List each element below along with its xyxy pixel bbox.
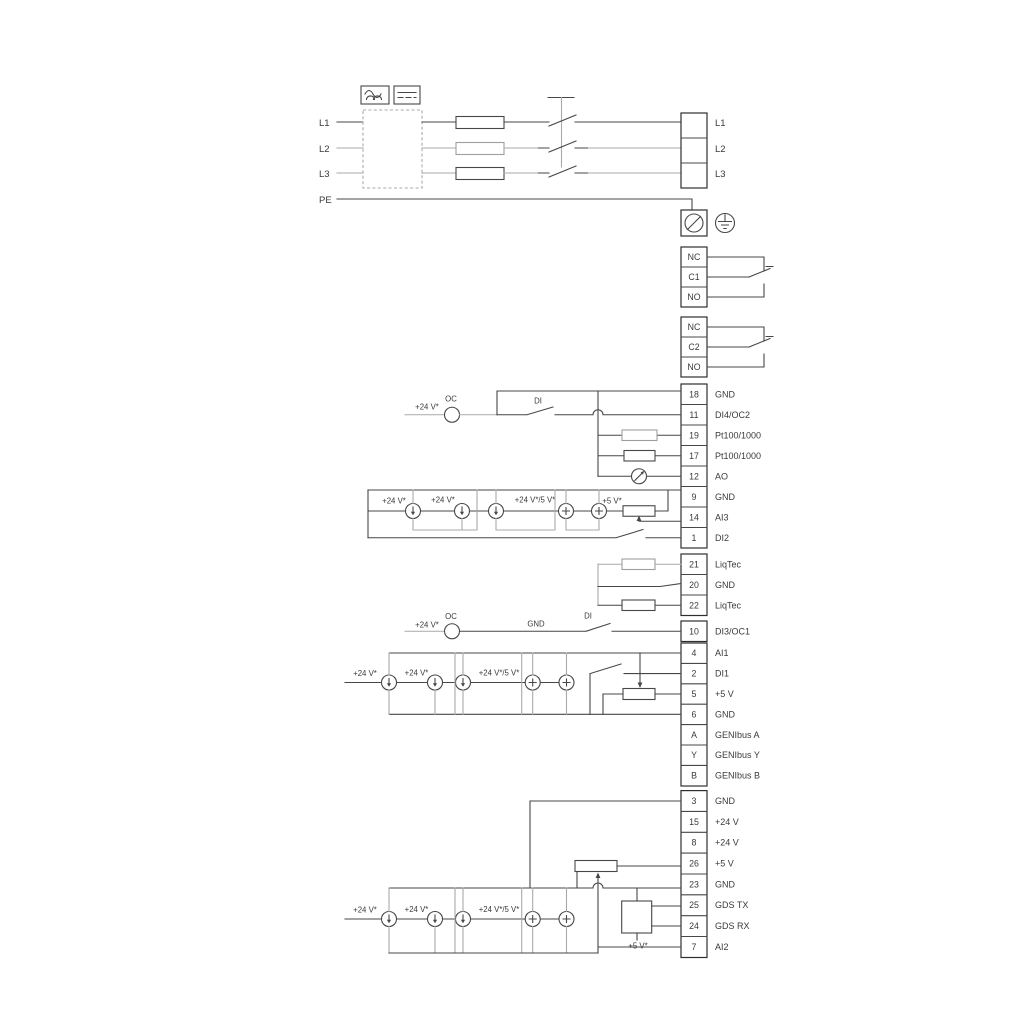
io-block-1: 18 11 19 17 12 9 14 1 GND DI4/OC2 Pt100/… [681,384,761,548]
terminal-label: GENIbus Y [715,750,760,760]
relay2-block: NC C2 NO [681,317,773,377]
relay1-contact-icon [707,257,773,297]
terminal-label: AI3 [715,512,729,522]
terminal-label: +24 V [715,817,739,827]
wire-pe [337,199,692,210]
terminal-num: 12 [689,471,699,481]
terminal-label: LiqTec [715,559,742,569]
ai1-network: +24 V* +24 V* +24 V*/5 V* [345,653,681,714]
terminal-num: 10 [689,626,699,636]
di3-gnd-label: GND [527,620,545,629]
ai2-supply2-label: +24 V* [405,905,429,914]
terminal-label: GND [715,879,736,889]
ai3-supply1-label: +24 V* [382,497,406,506]
current-source-icon [406,504,504,519]
fuse-icon-l3 [456,168,504,180]
liqtec-wiring [598,559,681,611]
output-l1-label: L1 [715,118,726,129]
terminal-label: AO [715,471,728,481]
potentiometer-icon [623,490,681,521]
terminal-label: AI2 [715,942,729,952]
terminal-num: 3 [692,796,697,806]
relay1-c: C1 [688,272,699,282]
terminal-num: 19 [689,430,699,440]
open-collector-icon [445,407,460,422]
terminal-num: 23 [689,879,699,889]
pt100-resistor-icon [622,430,657,441]
relay2-c: C2 [688,342,699,352]
relay1-block: NC C1 NO [681,247,773,307]
terminal-num: 1 [692,533,697,543]
input-l3-label: L3 [319,169,330,180]
ai3-supply4-label: +5 V* [602,497,621,506]
potentiometer-icon [603,653,681,714]
terminal-num: 20 [689,580,699,590]
terminal-label: GENIbus B [715,771,760,781]
ai1-supply1-label: +24 V* [353,669,377,678]
terminal-label: GND [715,389,736,399]
relay2-contact-icon [707,327,773,367]
terminal-num: 18 [689,389,699,399]
liqtec-block: 21 20 22 LiqTec GND LiqTec [598,554,742,616]
terminal-label: DI4/OC2 [715,410,750,420]
terminal-label: GDS RX [715,921,750,931]
relay2-nc: NC [688,322,701,332]
terminal-num: 11 [689,410,698,420]
earth-ground-icon [716,214,735,233]
dc-symbol-icon [394,86,420,104]
ai2-network: +24 V* +24 V* +24 V*/5 V* +5 V* [345,801,681,953]
terminal-num: 26 [689,859,699,869]
terminal-label: GND [715,492,736,502]
ai1-supply3-label: +24 V*/5 V* [479,669,520,678]
terminal-num: 22 [689,600,699,610]
io-block-3: 3 15 8 26 23 25 24 7 GND +24 V +24 V +5 … [681,791,750,958]
relay1-nc: NC [688,252,701,262]
terminal-num: 9 [692,492,697,502]
input-l2-label: L2 [319,144,330,155]
terminal-label: GENIbus A [715,730,760,740]
terminal-num: 14 [689,512,699,522]
di3-oc-label: OC [445,612,457,621]
relay2-no: NO [687,362,700,372]
di3-di-label: DI [584,612,592,621]
di3-switch-icon [460,624,682,632]
io-block-2: 4 2 5 6 A Y B AI1 DI1 +5 V GND GENIbus A… [681,643,760,786]
di2-switch-icon [368,530,681,538]
terminal-num: 15 [689,817,699,827]
di4-supply-label: +24 V* [415,403,439,412]
ai3-supply3-label: +24 V*/5 V* [515,496,556,505]
terminal-num: 21 [689,559,699,569]
terminal-label: +5 V [715,689,734,699]
terminal-num: 24 [689,921,699,931]
pt100-resistor-icon [624,451,655,462]
terminal-label: DI3/OC1 [715,626,750,636]
input-pe-label: PE [319,195,332,206]
open-collector-icon [445,624,460,639]
di4-switch-icon [497,407,681,415]
fuse-icon-l2 [456,143,504,155]
terminal-label: Pt100/1000 [715,430,761,440]
di4-di-label: DI [534,397,542,406]
ai3-network: +24 V* +24 V* +24 V*/5 V* +5 V* [368,490,681,538]
terminal-num: 5 [692,689,697,699]
terminal-num: 6 [692,709,697,719]
terminal-num: Y [691,750,697,760]
terminal-label: AI1 [715,648,729,658]
analog-output-meter-icon [632,469,647,484]
di3-wiring: +24 V* OC GND DI [405,612,681,639]
pt100-ao-wiring [598,430,681,484]
terminal-num: 25 [689,900,699,910]
di3-supply-label: +24 V* [415,621,439,630]
terminal-label: +5 V [715,859,734,869]
ai1-supply2-label: +24 V* [405,669,429,678]
output-l2-label: L2 [715,144,726,155]
ai2-supply1-label: +24 V* [353,906,377,915]
liqtec-sensor-icon [622,559,655,570]
relay1-no: NO [687,292,700,302]
input-l1-label: L1 [319,118,330,129]
di4-oc-label: OC [445,395,457,404]
terminal-label: GND [715,580,736,590]
terminal-num: 4 [692,648,697,658]
output-l3-label: L3 [715,169,726,180]
gds-sensor-icon: +5 V* [622,888,681,951]
terminal-num: 2 [692,669,697,679]
mains-terminal-block [681,113,707,188]
mains-input-section: L1 L2 L3 PE [319,86,735,236]
terminal-num: B [691,771,697,781]
terminal-num: 7 [692,942,697,952]
ai3-supply2-label: +24 V* [431,496,455,505]
terminal-label: +24 V [715,838,739,848]
terminal-label: GND [715,796,736,806]
terminal-num: A [691,730,697,740]
terminal-num: 8 [692,838,697,848]
ai2-supply3-label: +24 V*/5 V* [479,905,520,914]
filter-box [363,110,422,188]
terminal-label: GND [715,709,736,719]
terminal-label: DI1 [715,669,729,679]
wiring-diagram: L1 L2 L3 PE [0,0,1024,1024]
ac-symbol-icon [361,86,389,104]
terminal-label: DI2 [715,533,729,543]
liqtec-sensor-icon [622,600,655,611]
terminal-label: GDS TX [715,900,748,910]
terminal-label: LiqTec [715,600,742,610]
disconnect-switch-icon [539,98,589,188]
terminal-label: Pt100/1000 [715,451,761,461]
gds-supply-label: +5 V* [628,942,647,951]
fuse-icon-l1 [456,117,504,129]
terminal-num: 17 [689,451,699,461]
pe-screw-terminal-icon [681,210,707,236]
